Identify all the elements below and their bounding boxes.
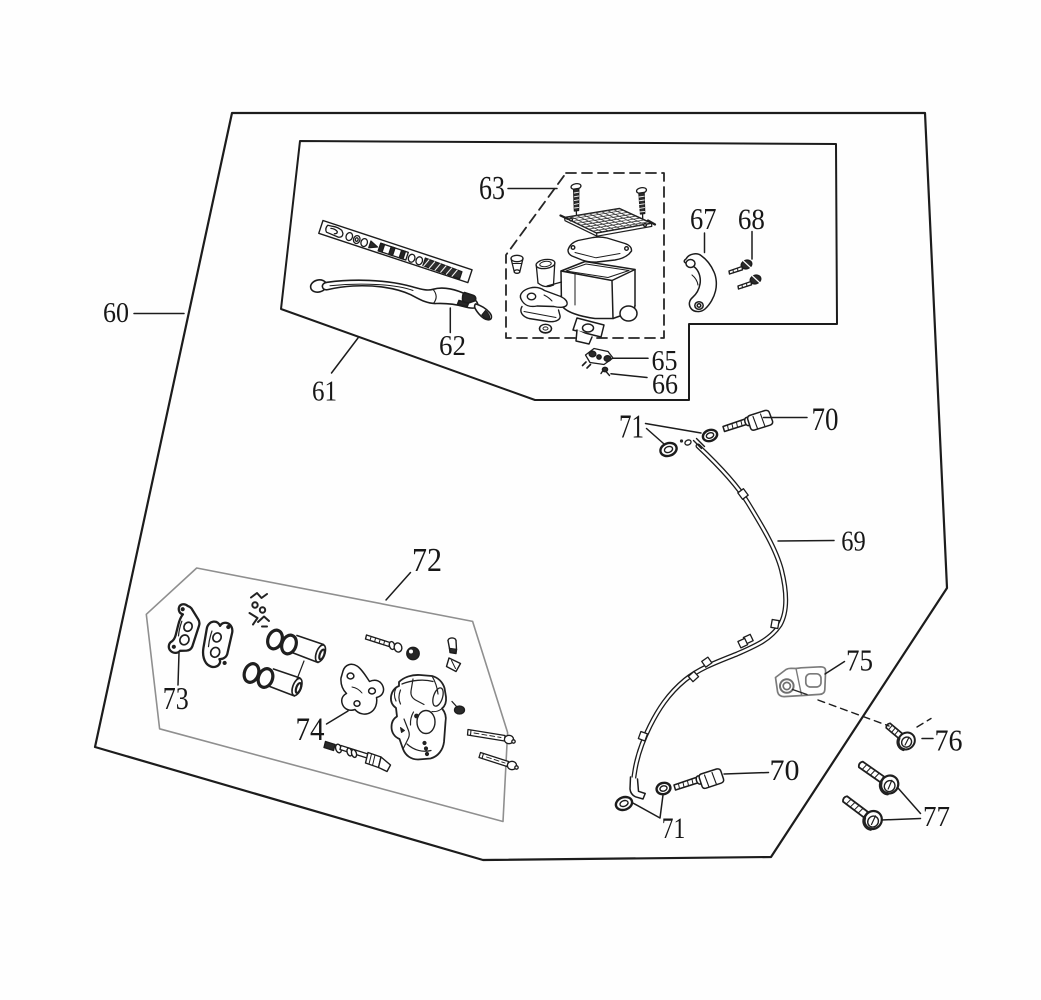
svg-text:76: 76: [935, 723, 963, 758]
svg-text:60: 60: [103, 297, 129, 329]
svg-text:67: 67: [690, 201, 717, 236]
svg-text:75: 75: [846, 643, 873, 678]
svg-text:66: 66: [652, 370, 678, 401]
svg-text:74: 74: [296, 712, 325, 748]
svg-text:61: 61: [312, 377, 337, 408]
svg-text:62: 62: [439, 330, 466, 362]
svg-text:63: 63: [479, 170, 505, 207]
svg-text:71: 71: [662, 812, 686, 845]
svg-text:73: 73: [163, 680, 189, 716]
svg-text:69: 69: [841, 526, 866, 558]
svg-text:70: 70: [770, 754, 800, 787]
svg-text:71: 71: [619, 409, 644, 446]
svg-text:70: 70: [812, 402, 839, 438]
svg-text:72: 72: [412, 542, 442, 579]
svg-text:77: 77: [923, 801, 950, 833]
